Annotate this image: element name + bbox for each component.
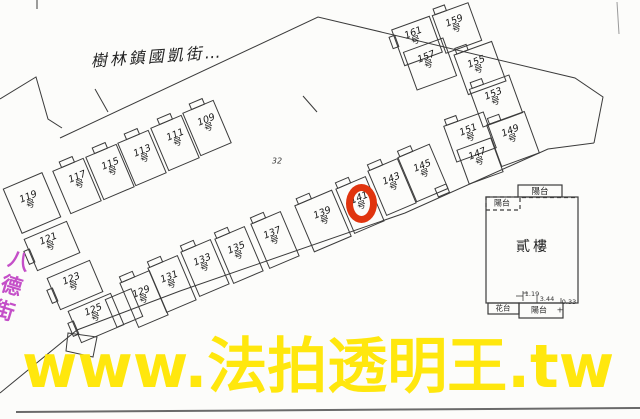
survey-plus-mark: + bbox=[557, 306, 564, 315]
dimension-2: 3.44 bbox=[540, 295, 554, 303]
lot-number: 32 bbox=[272, 157, 282, 166]
building-row-lower bbox=[119, 144, 449, 327]
site-watermark: www.法拍透明王.tw bbox=[22, 336, 640, 399]
dimension-3: 0.33 bbox=[562, 298, 576, 306]
scan-edge-line bbox=[16, 408, 640, 412]
balcony-bottom-label: 陽台 bbox=[531, 305, 547, 316]
balcony-top-label: 陽台 bbox=[531, 185, 548, 197]
dimension-1: 1.19 bbox=[525, 290, 539, 298]
highlight-circle bbox=[346, 184, 377, 223]
flower-bed-label: 花台 bbox=[496, 303, 511, 314]
balcony-left-label: 陽台 bbox=[494, 198, 510, 209]
scanned-cadastral-map: 樹林鎮國凱街… 八德街 32 109号 111号 113号 115号 117号 … bbox=[0, 0, 640, 419]
second-floor-label: 貳樓 bbox=[516, 236, 550, 256]
